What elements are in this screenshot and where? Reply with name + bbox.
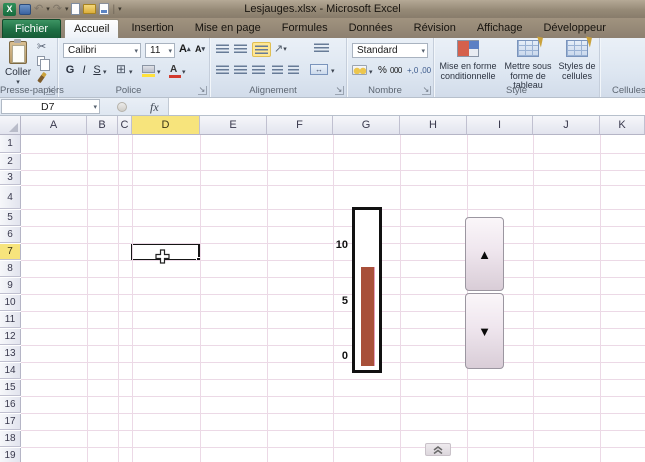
row-header-2[interactable]: 2 xyxy=(0,154,21,170)
font-name-value: Calibri xyxy=(68,45,96,56)
column-header-K[interactable]: K xyxy=(600,116,645,135)
column-header-E[interactable]: E xyxy=(200,116,267,135)
cell-cursor-pointer xyxy=(155,249,170,264)
cut-button[interactable]: ✂ xyxy=(37,42,46,53)
up-triangle-icon: ▲ xyxy=(478,247,491,262)
align-center-icon xyxy=(234,65,247,74)
tab-mise-en-page[interactable]: Mise en page xyxy=(186,19,270,38)
cell-styles-icon xyxy=(566,40,588,57)
tab-développeur[interactable]: Développeur xyxy=(534,19,614,38)
align-top-icon xyxy=(216,44,229,53)
group-style: Mise en forme conditionnelle Mettre sous… xyxy=(434,38,600,97)
chart-bar xyxy=(361,267,375,366)
underline-button[interactable]: S xyxy=(91,64,103,76)
increase-indent-button[interactable] xyxy=(288,65,299,74)
tab-accueil[interactable]: Accueil xyxy=(64,19,119,38)
alignment-launcher-icon[interactable]: ↘ xyxy=(335,86,344,95)
column-header-B[interactable]: B xyxy=(87,116,118,135)
title-bar: X ↶ ▾ ↷ ▾ | ▾ Lesjauges.xlsx - Microsoft… xyxy=(0,0,645,18)
shrink-font-button[interactable]: A▾ xyxy=(195,44,205,54)
row-header-8[interactable]: 8 xyxy=(0,261,21,277)
row-header-10[interactable]: 10 xyxy=(0,295,21,311)
row-header-13[interactable]: 13 xyxy=(0,346,21,362)
column-header-C[interactable]: C xyxy=(118,116,132,135)
ribbon: Coller ▾ ✂ Presse-papiers ↘ Calibri ▾ 11… xyxy=(0,38,645,98)
formula-bar-circle-button xyxy=(117,102,127,112)
quick-print-icon[interactable] xyxy=(99,3,109,15)
row-header-7[interactable]: 7 xyxy=(0,244,21,260)
undo-icon[interactable]: ↶ xyxy=(34,3,43,16)
column-header-D[interactable]: D xyxy=(132,116,200,135)
row-header-6[interactable]: 6 xyxy=(0,227,21,243)
quick-access-toolbar: X ↶ ▾ ↷ ▾ | ▾ xyxy=(0,0,122,18)
borders-caret-icon[interactable]: ▾ xyxy=(129,68,133,76)
formula-bar: D7 ▾ fx xyxy=(0,98,645,116)
percent-button[interactable]: % xyxy=(378,65,387,76)
spin-down-button[interactable]: ▼ xyxy=(465,293,504,369)
number-format-caret-icon: ▾ xyxy=(421,47,425,55)
chevrons-up-icon xyxy=(431,445,445,455)
font-color-button[interactable]: A xyxy=(170,65,177,75)
font-group-label: Police xyxy=(58,85,199,96)
chart-tick-0: 0 xyxy=(324,350,348,362)
wrap-text-button[interactable] xyxy=(314,43,329,52)
gridline xyxy=(21,447,645,448)
font-name-caret-icon: ▾ xyxy=(134,47,138,55)
font-launcher-icon[interactable]: ↘ xyxy=(198,86,207,95)
number-format-value: Standard xyxy=(357,45,398,56)
redo-caret-icon[interactable]: ▾ xyxy=(65,5,69,13)
align-middle-button[interactable] xyxy=(234,44,247,53)
row-header-18[interactable]: 18 xyxy=(0,431,21,447)
align-right-button[interactable] xyxy=(252,65,265,74)
orientation-button[interactable]: ↗▾ xyxy=(274,42,287,55)
tab-insertion[interactable]: Insertion xyxy=(122,19,182,38)
ribbon-tab-strip: Fichier AccueilInsertionMise en pageForm… xyxy=(0,18,645,38)
column-header-I[interactable]: I xyxy=(467,116,533,135)
align-right-icon xyxy=(252,65,265,74)
cells-group-label: Cellules xyxy=(602,85,645,96)
tab-révision[interactable]: Révision xyxy=(405,19,465,38)
worksheet: ABCDEFGHIJK 1234567891011121314151617181… xyxy=(0,116,645,462)
cell-styles-label: Styles de cellules xyxy=(556,62,598,81)
format-painter-button[interactable] xyxy=(37,72,47,83)
orientation-caret-icon: ▾ xyxy=(283,45,287,53)
merge-center-icon: ↔ xyxy=(315,65,323,74)
collapse-chevron-button[interactable] xyxy=(425,443,451,456)
insert-function-button[interactable]: fx xyxy=(150,100,159,115)
column-header-H[interactable]: H xyxy=(400,116,467,135)
gridline xyxy=(21,153,645,154)
conditional-formatting-icon xyxy=(457,40,479,57)
style-group-label: Style xyxy=(434,85,599,96)
gridline xyxy=(21,396,645,397)
group-cells: Insérer Supprimer Format Cellules xyxy=(600,38,645,97)
undo-caret-icon[interactable]: ▾ xyxy=(46,5,50,13)
italic-button[interactable]: I xyxy=(78,64,90,76)
row-header-1[interactable]: 1 xyxy=(0,135,21,153)
paste-button[interactable]: Coller ▾ xyxy=(5,41,31,86)
gridline xyxy=(21,185,645,186)
merge-center-button[interactable]: ↔ xyxy=(310,64,328,75)
name-box-caret-icon: ▾ xyxy=(93,103,99,111)
thermometer-chart[interactable]: 0510 xyxy=(324,206,386,376)
number-format-select[interactable]: Standard ▾ xyxy=(352,43,428,58)
chart-tick-5: 5 xyxy=(324,295,348,307)
row-header-19[interactable]: 19 xyxy=(0,448,21,462)
align-center-button[interactable] xyxy=(234,65,247,74)
row-header-11[interactable]: 11 xyxy=(0,312,21,328)
borders-button[interactable]: ⊞ xyxy=(116,63,126,75)
row-header-12[interactable]: 12 xyxy=(0,329,21,345)
clipboard-launcher-icon[interactable]: ↘ xyxy=(46,86,55,95)
column-header-J[interactable]: J xyxy=(533,116,600,135)
alignment-group-label: Alignement xyxy=(210,85,336,96)
spin-button-control: ▲ ▼ xyxy=(465,217,504,369)
row-header-16[interactable]: 16 xyxy=(0,397,21,413)
format-as-table-icon xyxy=(517,40,539,57)
font-color-caret-icon[interactable]: ▾ xyxy=(182,68,186,76)
align-top-button[interactable] xyxy=(216,44,229,53)
align-left-button[interactable] xyxy=(216,65,229,74)
column-header-A[interactable]: A xyxy=(21,116,87,135)
align-bottom-button[interactable] xyxy=(252,42,271,57)
fill-color-button[interactable] xyxy=(142,65,155,73)
row-header-17[interactable]: 17 xyxy=(0,414,21,430)
down-triangle-icon: ▼ xyxy=(478,324,491,339)
font-size-value: 11 xyxy=(150,45,160,56)
column-header-G[interactable]: G xyxy=(333,116,400,135)
gridline xyxy=(21,379,645,380)
font-size-select[interactable]: 11 ▾ xyxy=(145,43,175,58)
decrease-indent-button[interactable] xyxy=(272,65,283,74)
increase-indent-icon xyxy=(288,65,299,74)
excel-window: X ↶ ▾ ↷ ▾ | ▾ Lesjauges.xlsx - Microsoft… xyxy=(0,0,645,462)
gridline xyxy=(21,170,645,171)
row-header-9[interactable]: 9 xyxy=(0,278,21,294)
merge-caret-icon[interactable]: ▾ xyxy=(331,67,335,75)
row-header-5[interactable]: 5 xyxy=(0,210,21,226)
decrease-decimal-button[interactable]: ,00 xyxy=(420,66,431,75)
new-document-icon[interactable] xyxy=(71,3,80,15)
row-header-4[interactable]: 4 xyxy=(0,186,21,209)
excel-logo-icon: X xyxy=(3,3,16,16)
copy-button[interactable] xyxy=(37,56,45,66)
group-font: Calibri ▾ 11 ▾ A▴ A▾ G I S ▾ ⊞ ▾ ▾ A ▾ P… xyxy=(58,38,210,97)
save-icon[interactable] xyxy=(19,4,31,15)
redo-icon[interactable]: ↷ xyxy=(53,3,62,16)
gridline xyxy=(21,413,645,414)
row-header-15[interactable]: 15 xyxy=(0,380,21,396)
tab-formules[interactable]: Formules xyxy=(273,19,337,38)
accounting-format-button[interactable] xyxy=(352,65,367,75)
gridline xyxy=(21,430,645,431)
accounting-caret-icon[interactable]: ▾ xyxy=(369,68,373,76)
group-alignment: ↗▾ ↔ ▾ Alignement ↘ xyxy=(210,38,347,97)
chart-plot-area xyxy=(352,207,382,373)
tab-fichier[interactable]: Fichier xyxy=(2,19,61,38)
number-launcher-icon[interactable]: ↘ xyxy=(422,86,431,95)
column-header-F[interactable]: F xyxy=(267,116,333,135)
select-all-corner[interactable] xyxy=(0,116,21,135)
fill-color-caret-icon[interactable]: ▾ xyxy=(157,68,161,76)
paste-icon xyxy=(9,41,27,64)
grow-font-button[interactable]: A▴ xyxy=(179,43,190,55)
group-number: Standard ▾ ▾ % 000 +,0 ,00 Nombre ↘ xyxy=(347,38,434,97)
formula-input[interactable] xyxy=(168,98,645,115)
grow-font-label: A xyxy=(179,43,187,55)
name-box-value: D7 xyxy=(2,101,93,113)
tab-données[interactable]: Données xyxy=(340,19,402,38)
group-clipboard: Coller ▾ ✂ Presse-papiers ↘ xyxy=(0,38,58,97)
qat-customize-icon[interactable]: ▾ xyxy=(118,5,122,13)
font-size-caret-icon: ▾ xyxy=(168,47,172,55)
name-box[interactable]: D7 ▾ xyxy=(1,99,100,114)
clipboard-group-label: Presse-papiers xyxy=(0,85,47,96)
align-bottom-icon xyxy=(255,45,268,54)
align-left-icon xyxy=(216,65,229,74)
paste-label: Coller xyxy=(5,67,31,78)
tab-affichage[interactable]: Affichage xyxy=(468,19,532,38)
font-name-select[interactable]: Calibri ▾ xyxy=(63,43,141,58)
align-middle-icon xyxy=(234,44,247,53)
number-group-label: Nombre xyxy=(347,85,423,96)
bold-button[interactable]: G xyxy=(64,64,76,76)
row-header-3[interactable]: 3 xyxy=(0,171,21,185)
underline-caret-icon[interactable]: ▾ xyxy=(103,68,107,76)
spin-up-button[interactable]: ▲ xyxy=(465,217,504,291)
row-header-14[interactable]: 14 xyxy=(0,363,21,379)
thousands-button[interactable]: 000 xyxy=(390,66,402,75)
wrap-text-icon xyxy=(314,43,329,52)
decrease-indent-icon xyxy=(272,65,283,74)
chart-tick-10: 10 xyxy=(324,239,348,251)
qat-separator: | xyxy=(112,4,115,15)
increase-decimal-button[interactable]: +,0 xyxy=(407,66,418,75)
orientation-icon: ↗ xyxy=(274,42,283,55)
open-folder-icon[interactable] xyxy=(83,4,96,14)
conditional-formatting-label: Mise en forme conditionnelle xyxy=(436,62,500,81)
